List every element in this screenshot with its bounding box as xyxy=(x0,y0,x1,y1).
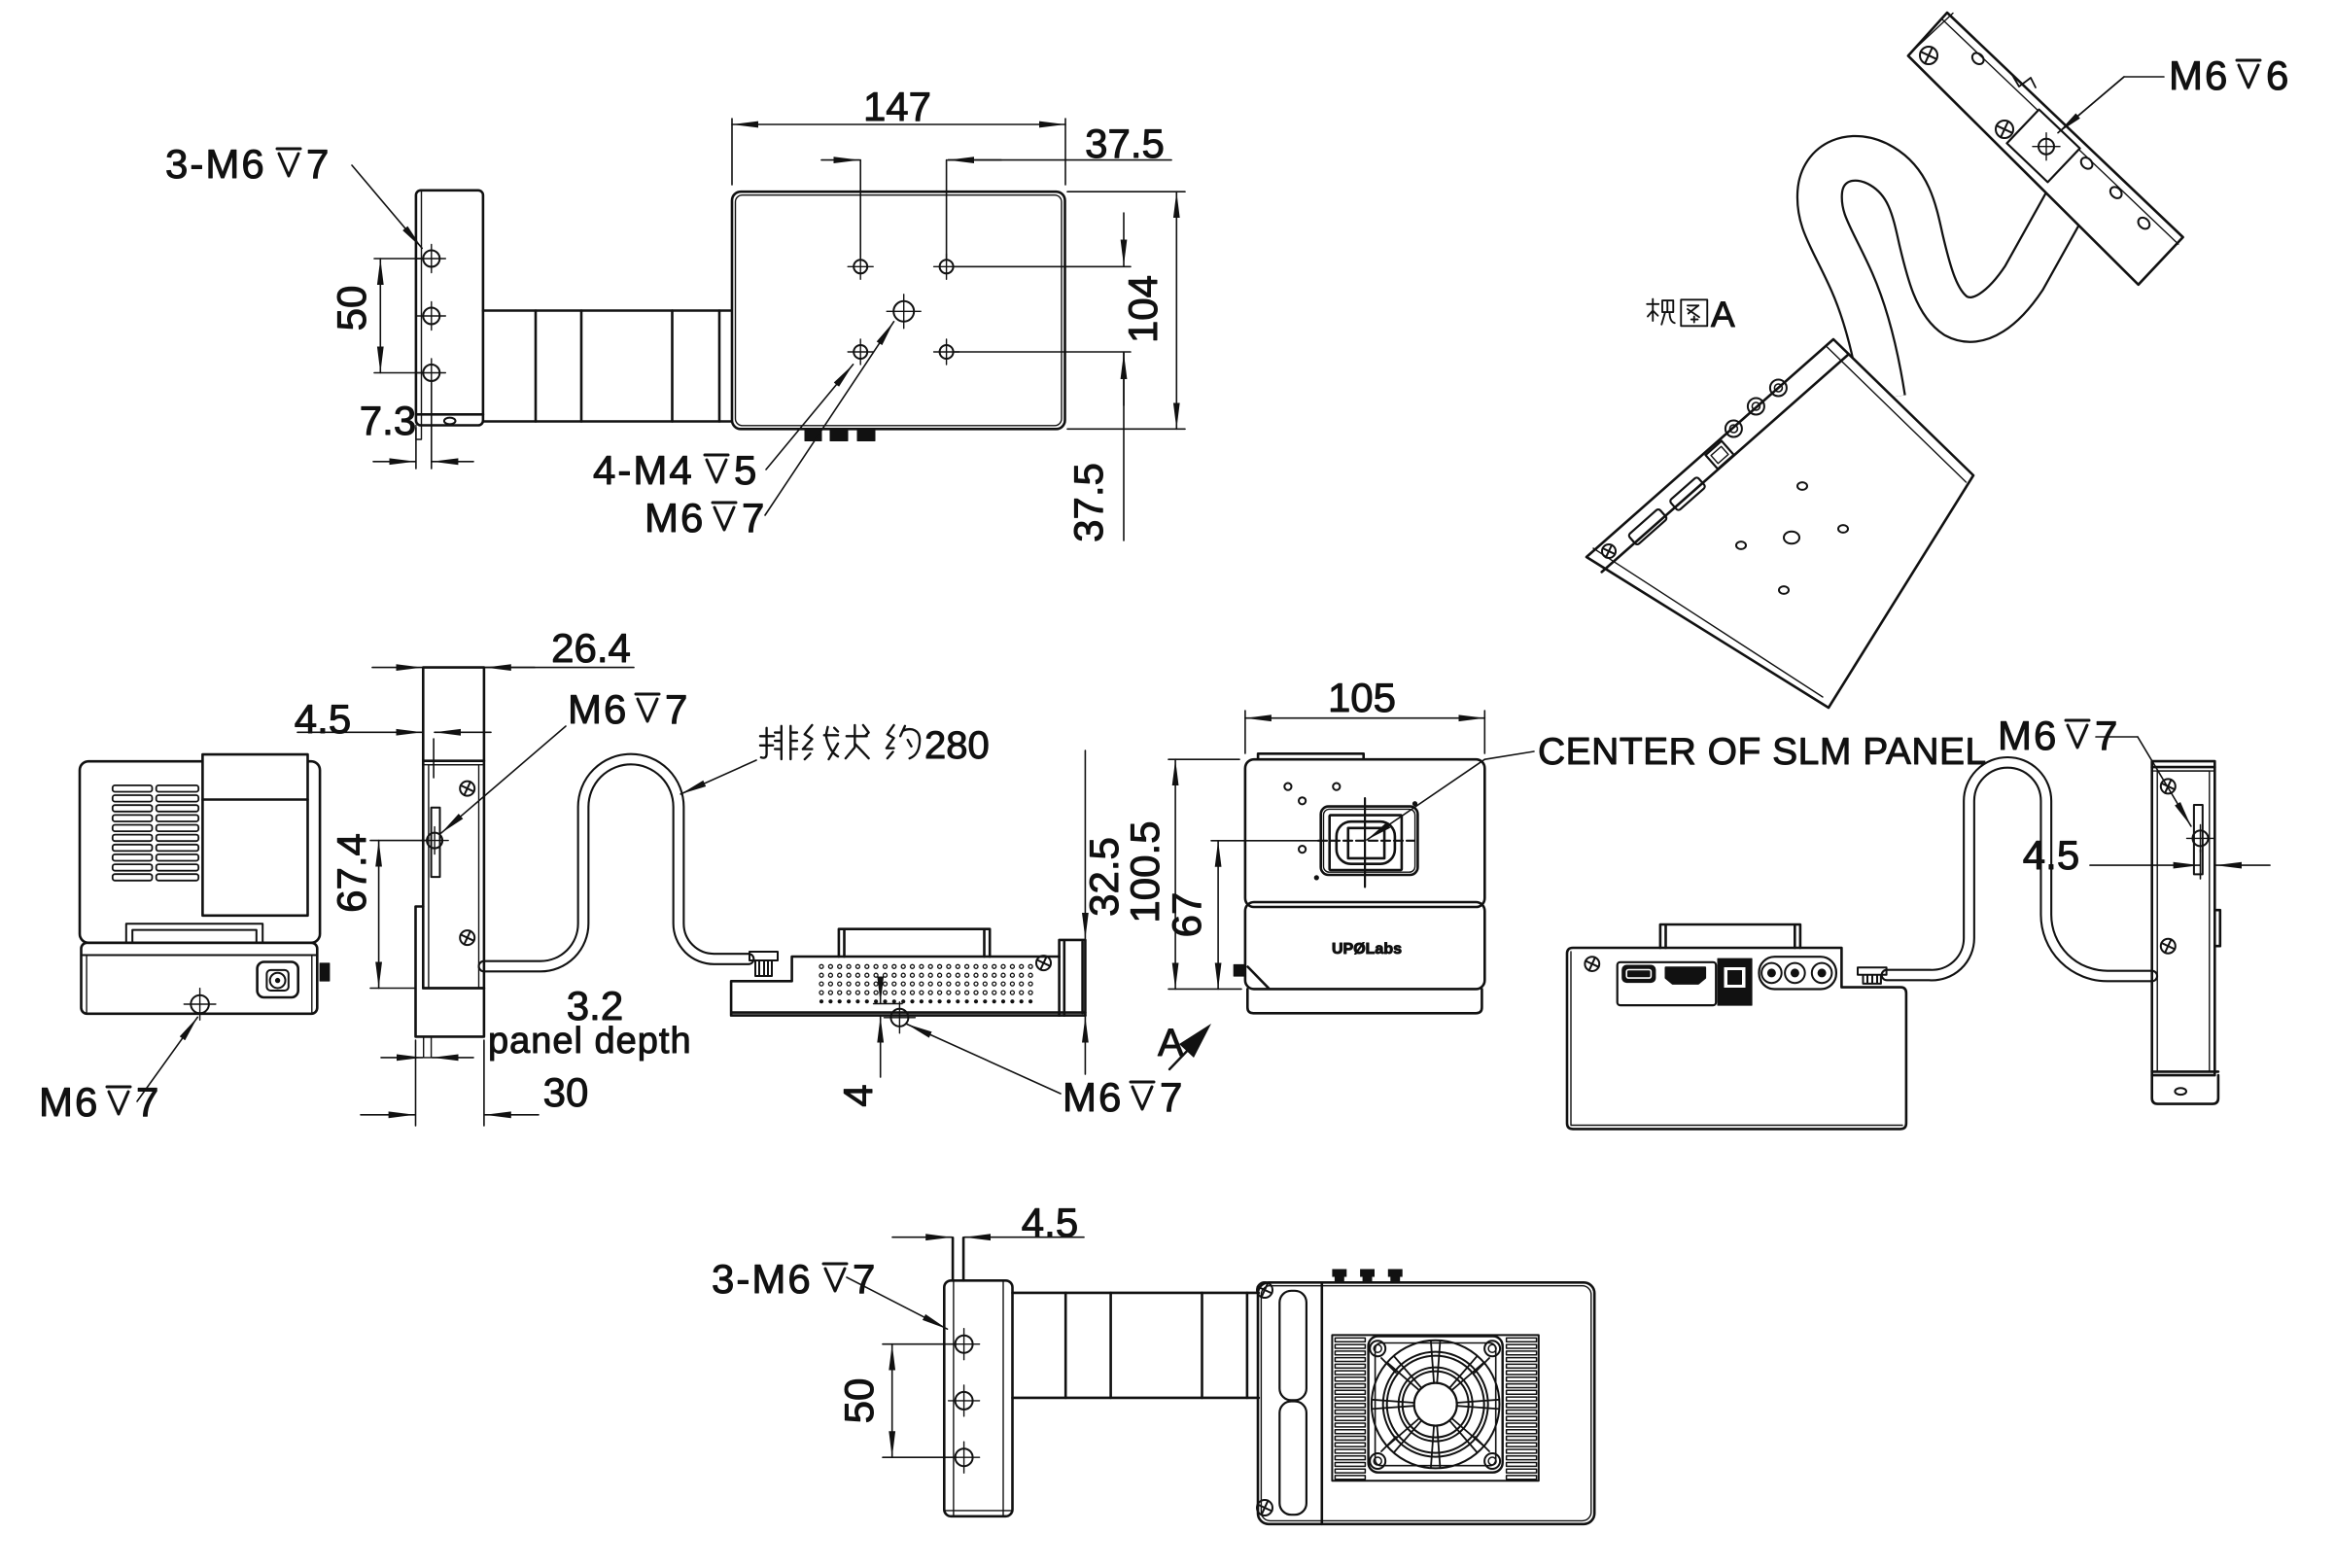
svg-text:M6: M6 xyxy=(645,495,705,540)
svg-text:4-M4: 4-M4 xyxy=(593,447,694,493)
svg-text:26.4: 26.4 xyxy=(551,625,631,671)
svg-text:4: 4 xyxy=(835,1084,881,1106)
svg-text:UPØLabs: UPØLabs xyxy=(1332,941,1402,958)
svg-text:37.5: 37.5 xyxy=(1085,121,1165,166)
svg-text:panel depth: panel depth xyxy=(488,1021,692,1062)
svg-text:7: 7 xyxy=(853,1256,877,1302)
svg-text:M6: M6 xyxy=(568,686,628,732)
svg-text:3-M6: 3-M6 xyxy=(165,141,266,187)
svg-text:32.5: 32.5 xyxy=(1081,837,1127,917)
svg-text:50: 50 xyxy=(329,286,374,331)
svg-text:105: 105 xyxy=(1328,675,1396,720)
svg-text:M6: M6 xyxy=(1998,713,2058,758)
svg-text:4.5: 4.5 xyxy=(1022,1200,1078,1245)
svg-text:7: 7 xyxy=(306,141,331,187)
svg-text:7: 7 xyxy=(1160,1074,1184,1120)
svg-text:5: 5 xyxy=(734,447,758,493)
svg-text:3-M6: 3-M6 xyxy=(712,1256,813,1302)
svg-text:37.5: 37.5 xyxy=(1065,463,1111,542)
svg-text:104: 104 xyxy=(1120,275,1166,343)
svg-text:100.5: 100.5 xyxy=(1122,820,1167,923)
svg-text:6: 6 xyxy=(2266,52,2290,98)
svg-text:M6: M6 xyxy=(39,1079,99,1125)
svg-text:M6: M6 xyxy=(1063,1074,1123,1120)
svg-text:280: 280 xyxy=(924,724,990,767)
svg-text:A: A xyxy=(1711,295,1735,334)
svg-text:67: 67 xyxy=(1164,892,1209,938)
svg-text:50: 50 xyxy=(836,1378,882,1424)
svg-text:4.5: 4.5 xyxy=(2023,832,2079,878)
svg-text:4.5: 4.5 xyxy=(295,696,351,742)
svg-text:7.3: 7.3 xyxy=(360,398,416,443)
svg-text:30: 30 xyxy=(543,1069,589,1115)
svg-text:CENTER OF SLM PANEL: CENTER OF SLM PANEL xyxy=(1538,731,1987,773)
svg-text:7: 7 xyxy=(665,686,689,732)
svg-text:A: A xyxy=(1158,1022,1184,1064)
svg-text:M6: M6 xyxy=(2169,52,2229,98)
svg-text:7: 7 xyxy=(2095,713,2119,758)
svg-text:7: 7 xyxy=(742,495,766,540)
svg-text:147: 147 xyxy=(863,84,931,129)
svg-text:67.4: 67.4 xyxy=(329,833,374,913)
